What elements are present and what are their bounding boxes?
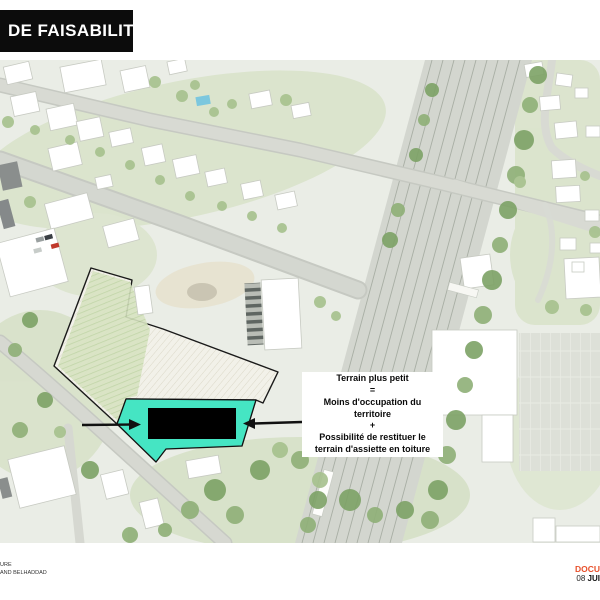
annotation-line: + xyxy=(302,420,443,432)
page-title: DE FAISABILITE xyxy=(0,21,146,41)
annotation-line: Terrain plus petit xyxy=(302,373,443,385)
aerial-map xyxy=(0,60,600,543)
aerial-map-drawing xyxy=(0,60,600,543)
annotation-box: Terrain plus petit = Moins d'occupation … xyxy=(302,372,443,457)
footer-credits: URE AND BELHADDAD xyxy=(0,562,47,577)
annotation-line: = xyxy=(302,385,443,397)
studio-credit-line: AND BELHADDAD xyxy=(0,570,47,578)
parking-lot xyxy=(519,333,600,471)
document-date: 08 JUI xyxy=(575,574,600,584)
document-date-prefix: 08 xyxy=(576,574,587,583)
building-footprint xyxy=(148,408,236,439)
document-date-month: JUI xyxy=(588,574,600,583)
annotation-line: Possibilité de restituer le xyxy=(302,432,443,444)
annotation-line: Moins d'occupation du xyxy=(302,397,443,409)
studio-credit-line: URE xyxy=(0,562,47,570)
annotation-line: terrain d'assiette en toiture xyxy=(302,444,443,456)
loading-docks xyxy=(244,283,263,346)
title-box: DE FAISABILITE xyxy=(0,10,133,52)
footer-document-info: DOCU 08 JUI xyxy=(575,564,600,584)
annotation-line: territoire xyxy=(302,409,443,421)
document-label: DOCU xyxy=(575,564,600,574)
feasibility-study-page: DE FAISABILITE Terrain plus petit = Moin… xyxy=(0,0,600,600)
